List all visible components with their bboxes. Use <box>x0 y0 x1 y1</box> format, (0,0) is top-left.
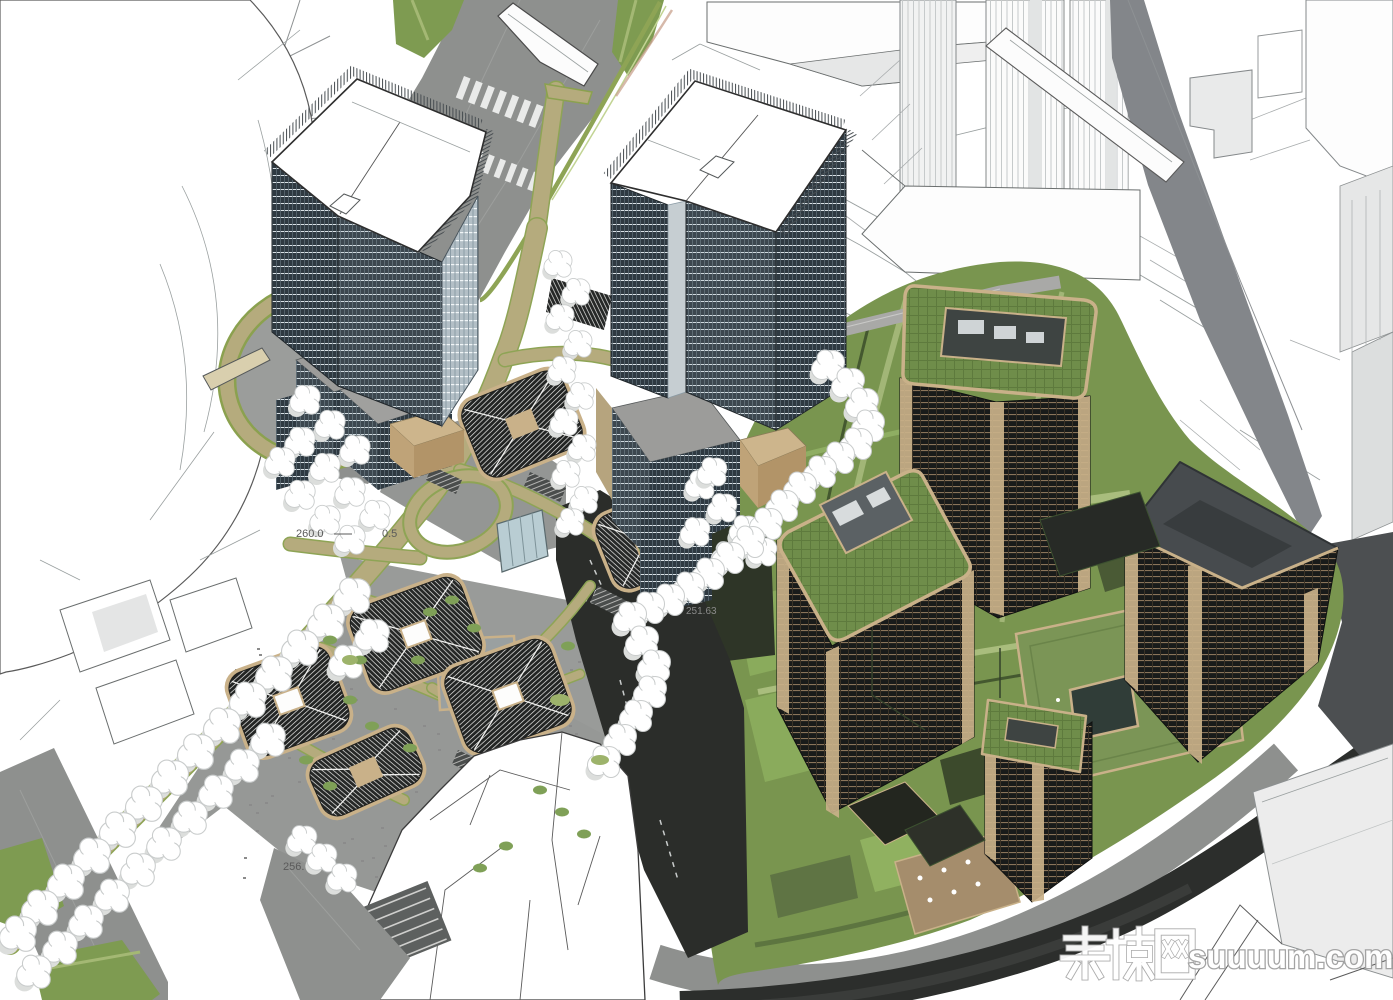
svg-text:suuuum.com: suuuum.com <box>1188 938 1393 975</box>
svg-text:251.63: 251.63 <box>686 606 717 617</box>
svg-text:256.: 256. <box>283 861 304 873</box>
svg-text:260.0: 260.0 <box>296 528 324 540</box>
svg-text:0.5: 0.5 <box>382 528 397 540</box>
